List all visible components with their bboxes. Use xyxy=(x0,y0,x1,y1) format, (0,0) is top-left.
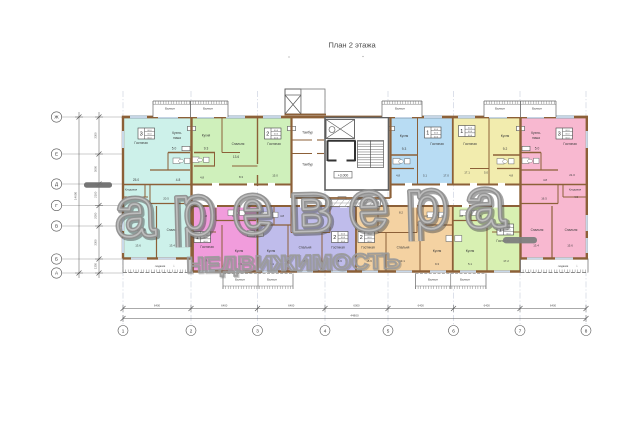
svg-text:9.2: 9.2 xyxy=(503,147,508,151)
svg-text:2100: 2100 xyxy=(94,191,98,198)
svg-text:3: 3 xyxy=(140,132,143,138)
svg-text:В: В xyxy=(55,224,58,229)
svg-text:Гостиная: Гостиная xyxy=(563,142,577,146)
svg-text:Кухня: Кухня xyxy=(433,249,442,253)
svg-text:6: 6 xyxy=(452,328,455,333)
svg-text:3300: 3300 xyxy=(94,132,98,139)
svg-text:7: 7 xyxy=(519,328,522,333)
svg-text:Тамбур: Тамбур xyxy=(302,163,313,167)
svg-text:Гостиная: Гостиная xyxy=(267,142,281,146)
svg-text:Гостиная: Гостиная xyxy=(463,142,477,146)
svg-text:1: 1 xyxy=(460,129,463,135)
svg-text:ниша: ниша xyxy=(532,136,540,140)
svg-text:13.6: 13.6 xyxy=(233,155,239,159)
svg-text:1: 1 xyxy=(426,131,429,137)
svg-text:14600: 14600 xyxy=(74,191,78,200)
svg-text:15.6: 15.6 xyxy=(567,244,573,248)
svg-text:План 2 этажа: План 2 этажа xyxy=(328,41,376,50)
svg-text:6000: 6000 xyxy=(353,304,360,308)
svg-text:Гостиная: Гостиная xyxy=(430,142,444,146)
svg-text:5.0: 5.0 xyxy=(535,147,540,151)
svg-text:Спальня: Спальня xyxy=(299,246,312,250)
svg-text:2050: 2050 xyxy=(94,212,98,219)
svg-text:Балкон: Балкон xyxy=(165,107,175,111)
svg-text:лоджия: лоджия xyxy=(558,264,569,268)
svg-text:НЕДВИЖИМОСТЬ: НЕДВИЖИМОСТЬ xyxy=(186,248,401,277)
svg-text:аревера: аревера xyxy=(114,163,522,253)
svg-text:Кухня-: Кухня- xyxy=(531,131,541,135)
svg-text:5.1: 5.1 xyxy=(468,262,472,266)
svg-text:6400: 6400 xyxy=(418,304,425,308)
svg-text:6400: 6400 xyxy=(484,304,491,308)
svg-text:Балкон: Балкон xyxy=(532,107,542,111)
svg-text:6400: 6400 xyxy=(288,304,295,308)
svg-text:5.0: 5.0 xyxy=(172,147,177,151)
svg-text:Ж: Ж xyxy=(54,115,59,120)
svg-text:5: 5 xyxy=(387,328,390,333)
svg-text:4.3: 4.3 xyxy=(574,195,578,199)
svg-text:Кухня: Кухня xyxy=(400,134,409,138)
svg-text:3000: 3000 xyxy=(94,165,98,172)
svg-text:Кухня-: Кухня- xyxy=(172,131,182,135)
svg-text:Кухня: Кухня xyxy=(501,134,510,138)
svg-text:Б: Б xyxy=(55,257,58,262)
svg-text:Балкон: Балкон xyxy=(267,278,277,282)
svg-text:Спальня: Спальня xyxy=(531,228,544,232)
svg-text:4.8: 4.8 xyxy=(543,178,547,182)
svg-text:Балкон: Балкон xyxy=(428,278,438,282)
svg-text:Балкон: Балкон xyxy=(495,107,505,111)
svg-text:Балкон: Балкон xyxy=(203,107,213,111)
svg-text:9.3: 9.3 xyxy=(204,147,209,151)
svg-text:Тамбур: Тамбур xyxy=(302,131,313,135)
svg-text:Балкон: Балкон xyxy=(395,107,405,111)
svg-text:Е: Е xyxy=(55,152,58,157)
svg-text:6400: 6400 xyxy=(221,304,228,308)
svg-text:Спальня: Спальня xyxy=(232,142,245,146)
svg-text:17.2: 17.2 xyxy=(503,259,509,263)
svg-text:13.4: 13.4 xyxy=(533,244,539,248)
svg-text:44800: 44800 xyxy=(350,314,359,318)
svg-text:лоджия: лоджия xyxy=(155,264,166,268)
svg-text:Балкон: Балкон xyxy=(460,278,470,282)
svg-text:3: 3 xyxy=(256,328,259,333)
svg-text:3300: 3300 xyxy=(94,239,98,246)
svg-text:6400: 6400 xyxy=(154,304,161,308)
svg-text:4: 4 xyxy=(324,328,327,333)
svg-text:16.5: 16.5 xyxy=(541,197,547,201)
svg-text:Кухня: Кухня xyxy=(202,134,211,138)
svg-text:1350: 1350 xyxy=(94,262,98,269)
svg-text:8: 8 xyxy=(585,328,588,333)
svg-text:3: 3 xyxy=(558,132,561,138)
svg-text:ниша: ниша xyxy=(173,136,181,140)
svg-text:2: 2 xyxy=(266,132,269,138)
svg-text:9.3: 9.3 xyxy=(402,147,407,151)
svg-text:9.3: 9.3 xyxy=(435,262,439,266)
svg-text:Балкон: Балкон xyxy=(235,278,245,282)
svg-text:Гостиная: Гостиная xyxy=(134,141,148,145)
svg-text:6400: 6400 xyxy=(550,304,557,308)
svg-text:Кухня: Кухня xyxy=(466,249,475,253)
svg-text:1: 1 xyxy=(122,328,125,333)
svg-text:2: 2 xyxy=(190,328,193,333)
svg-text:Спальня: Спальня xyxy=(565,228,578,232)
svg-text:21.0: 21.0 xyxy=(569,173,575,177)
